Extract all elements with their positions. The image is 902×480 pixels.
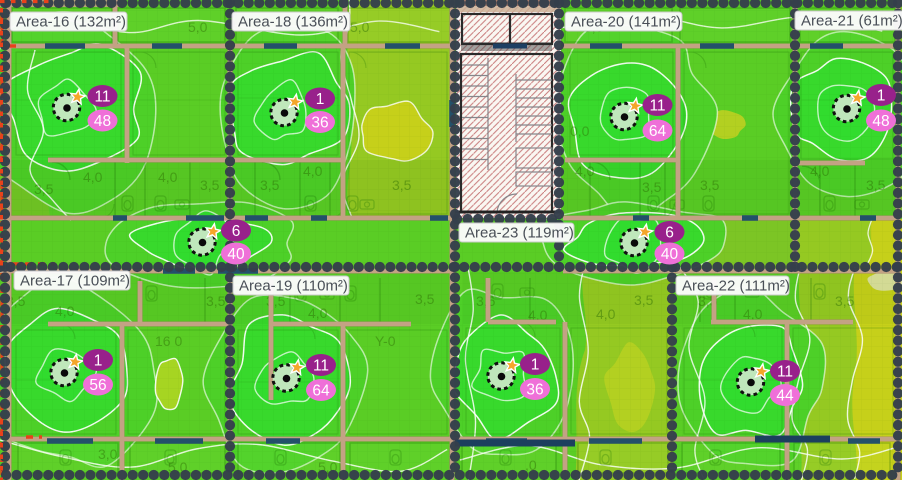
svg-text:56: 56 xyxy=(89,377,106,394)
svg-text:Area-20 (141m²): Area-20 (141m²) xyxy=(571,14,681,31)
svg-text:Area-23 (119m²): Area-23 (119m²) xyxy=(465,225,574,242)
svg-text:40: 40 xyxy=(227,246,245,263)
svg-text:1: 1 xyxy=(94,353,103,370)
svg-text:11: 11 xyxy=(649,98,665,115)
svg-text:1: 1 xyxy=(531,357,540,374)
svg-text:36: 36 xyxy=(526,382,543,399)
svg-text:6: 6 xyxy=(665,225,674,242)
svg-text:40: 40 xyxy=(661,246,679,263)
svg-text:Area-21 (61m²): Area-21 (61m²) xyxy=(801,13,902,30)
svg-text:Area-17 (109m²): Area-17 (109m²) xyxy=(20,273,130,290)
svg-text:Area-19 (110m²): Area-19 (110m²) xyxy=(239,278,348,295)
svg-text:6: 6 xyxy=(232,223,241,240)
svg-text:11: 11 xyxy=(94,89,110,106)
svg-text:48: 48 xyxy=(94,113,111,130)
svg-text:1: 1 xyxy=(316,91,325,108)
svg-text:44: 44 xyxy=(776,388,794,405)
svg-text:64: 64 xyxy=(649,123,667,140)
svg-text:Area-16 (132m²): Area-16 (132m²) xyxy=(16,14,126,31)
svg-text:Area-18 (136m²): Area-18 (136m²) xyxy=(238,14,348,31)
svg-text:11: 11 xyxy=(313,358,329,375)
svg-text:11: 11 xyxy=(777,364,793,381)
svg-text:64: 64 xyxy=(312,383,330,400)
svg-text:Area-22 (111m²): Area-22 (111m²) xyxy=(682,278,790,295)
svg-text:36: 36 xyxy=(311,115,328,132)
svg-text:1: 1 xyxy=(877,88,886,105)
svg-text:48: 48 xyxy=(872,113,889,130)
